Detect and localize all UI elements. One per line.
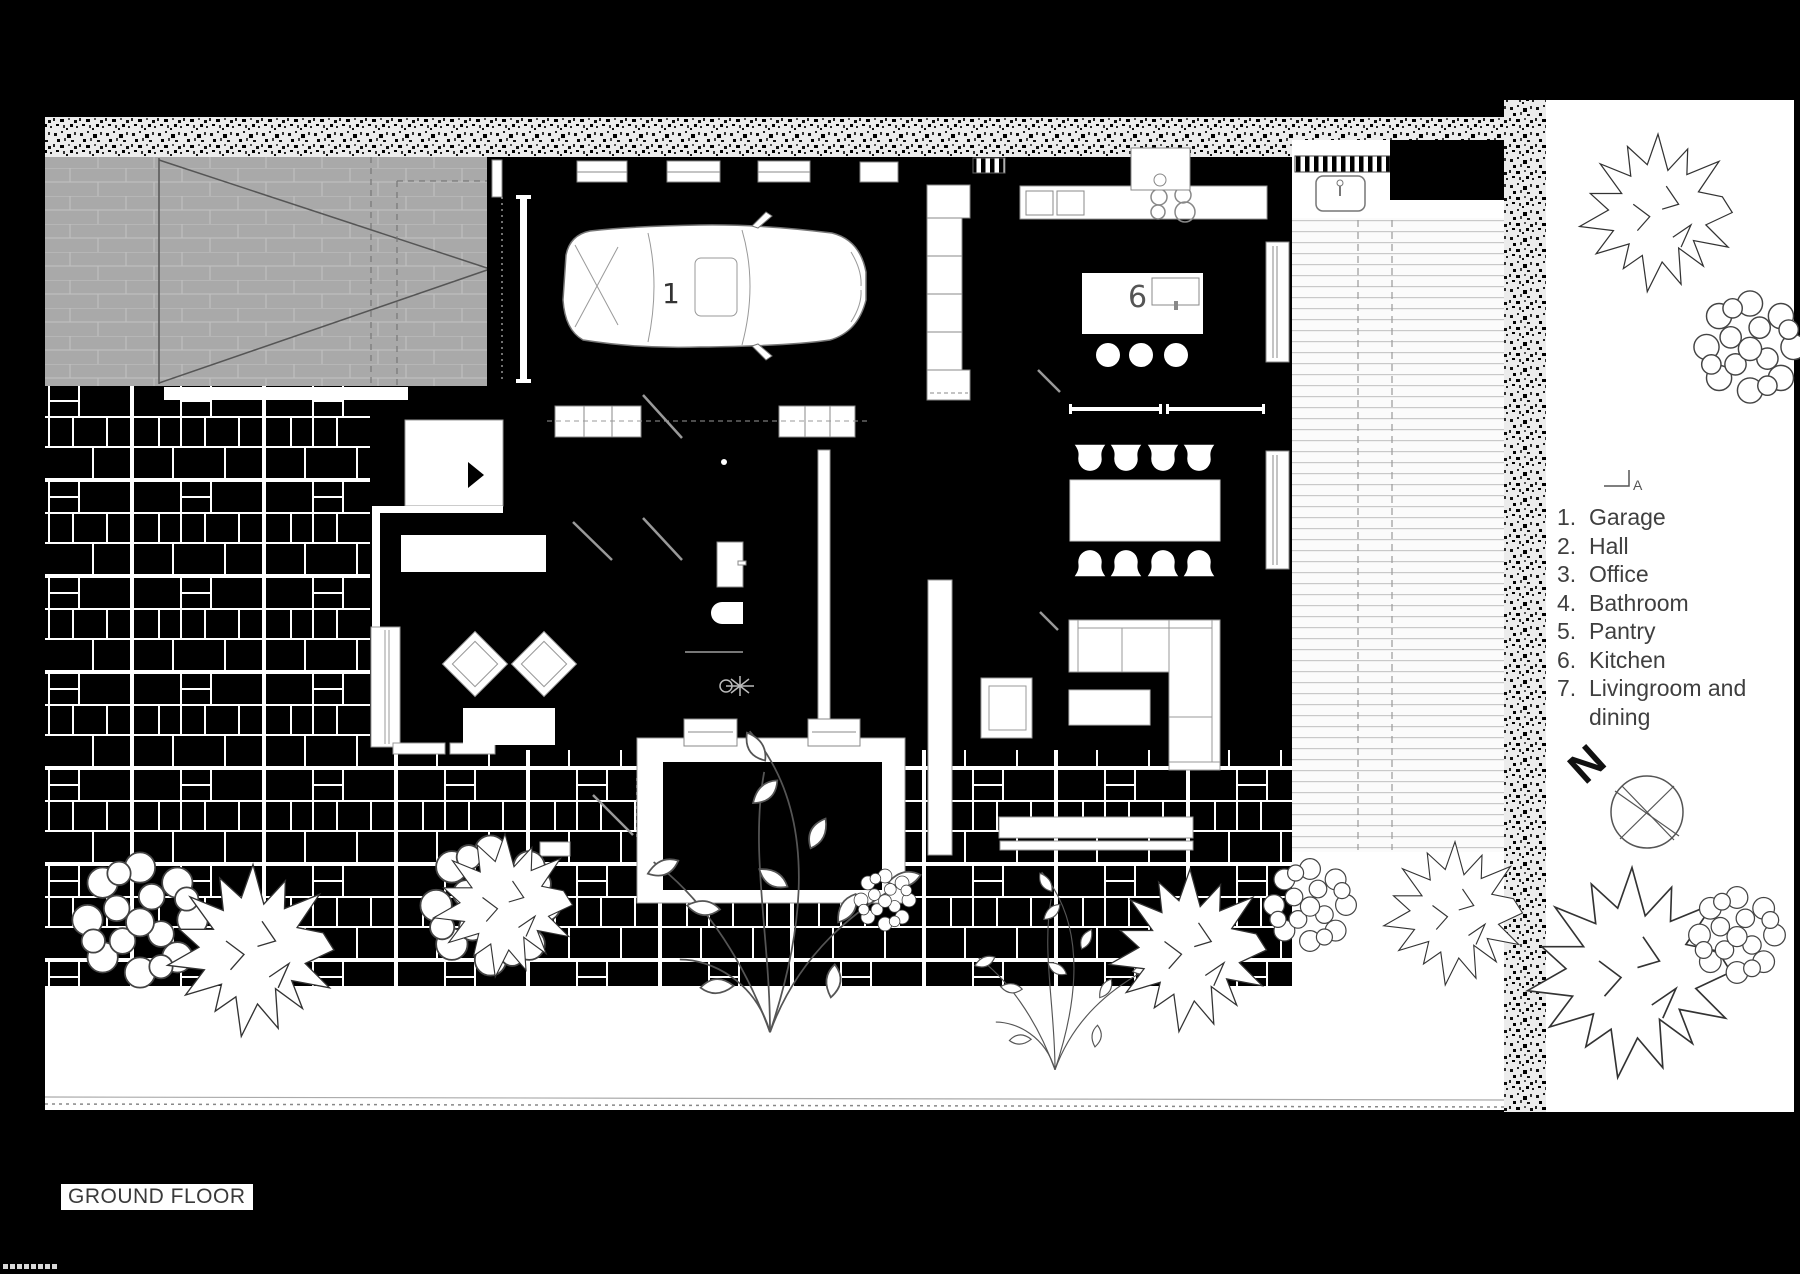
wall-hall-living (818, 450, 830, 742)
legend-item: 5.Pantry (1557, 617, 1793, 646)
coffee-table (1069, 690, 1150, 725)
legend-item: 1.Garage (1557, 503, 1793, 532)
terrace-deck (1292, 140, 1504, 986)
garage-south-path (164, 387, 408, 400)
site-plan-drawing: 1 (0, 0, 1800, 1274)
legend-item: 4.Bathroom (1557, 589, 1793, 618)
room-legend: 1.Garage 2.Hall 3.Office 4.Bathroom 5.Pa… (1557, 503, 1793, 731)
office-west-window (371, 627, 400, 747)
legend-number: 1. (1557, 503, 1581, 532)
tv-bench (999, 817, 1193, 838)
office-wall-top (372, 506, 503, 513)
office-table (463, 708, 555, 745)
watermark-mark (3, 1264, 59, 1269)
legend-number: 3. (1557, 560, 1581, 589)
legend-label: Garage (1589, 503, 1666, 532)
legend-item: 3.Office (1557, 560, 1793, 589)
pergola-slats (1295, 156, 1390, 172)
legend-number: 7. (1557, 674, 1581, 731)
legend-item: 2.Hall (1557, 532, 1793, 561)
tree-bubbly (854, 869, 916, 931)
tree-bubbly (1689, 887, 1786, 984)
hall-west-window (540, 842, 570, 856)
outdoor-sink (1316, 176, 1365, 211)
kitchen-west-wall-cap (860, 162, 898, 182)
legend-number: 2. (1557, 532, 1581, 561)
hall-ceiling-point (721, 459, 727, 465)
dining-table (1070, 480, 1220, 541)
living-south-window (1000, 841, 1193, 850)
garage-room-number: 1 (662, 277, 680, 310)
vanity-cabinet (717, 542, 746, 587)
legend-label: Kitchen (1589, 646, 1666, 675)
section-marker-label: A (1633, 477, 1643, 493)
legend-number: 5. (1557, 617, 1581, 646)
toilet (711, 602, 743, 624)
roof-hatch (1131, 148, 1190, 190)
legend-item: 7.Livingroom and dining (1557, 674, 1793, 731)
kitchen-island: 6 (1082, 273, 1203, 367)
tree-bubbly (1694, 291, 1800, 403)
office-wall-left (372, 513, 380, 627)
legend-number: 4. (1557, 589, 1581, 618)
wall-living-patio (928, 580, 952, 855)
driveway-paving (45, 157, 487, 386)
legend-label: Pantry (1589, 617, 1655, 646)
kitchen-room-number: 6 (1128, 280, 1147, 315)
tree-bubbly (1264, 859, 1357, 952)
outbuilding-block (1390, 140, 1504, 200)
legend-label: Livingroom and dining (1589, 674, 1793, 731)
floor-plan-page: 1 (0, 0, 1800, 1274)
kitchen-north-window (973, 158, 1005, 173)
kitchen-counter (1020, 186, 1267, 222)
lounge-chair (981, 678, 1032, 738)
legend-label: Office (1589, 560, 1649, 589)
legend-number: 6. (1557, 646, 1581, 675)
legend-item: 6.Kitchen (1557, 646, 1793, 675)
gravel-strip-right (1504, 100, 1546, 1112)
office-entry-porch (405, 420, 503, 506)
office-desk (401, 535, 546, 572)
legend-label: Hall (1589, 532, 1629, 561)
car (563, 212, 866, 360)
bar-stools (1096, 343, 1188, 367)
drawing-title: GROUND FLOOR (61, 1184, 253, 1210)
legend-label: Bathroom (1589, 589, 1689, 618)
